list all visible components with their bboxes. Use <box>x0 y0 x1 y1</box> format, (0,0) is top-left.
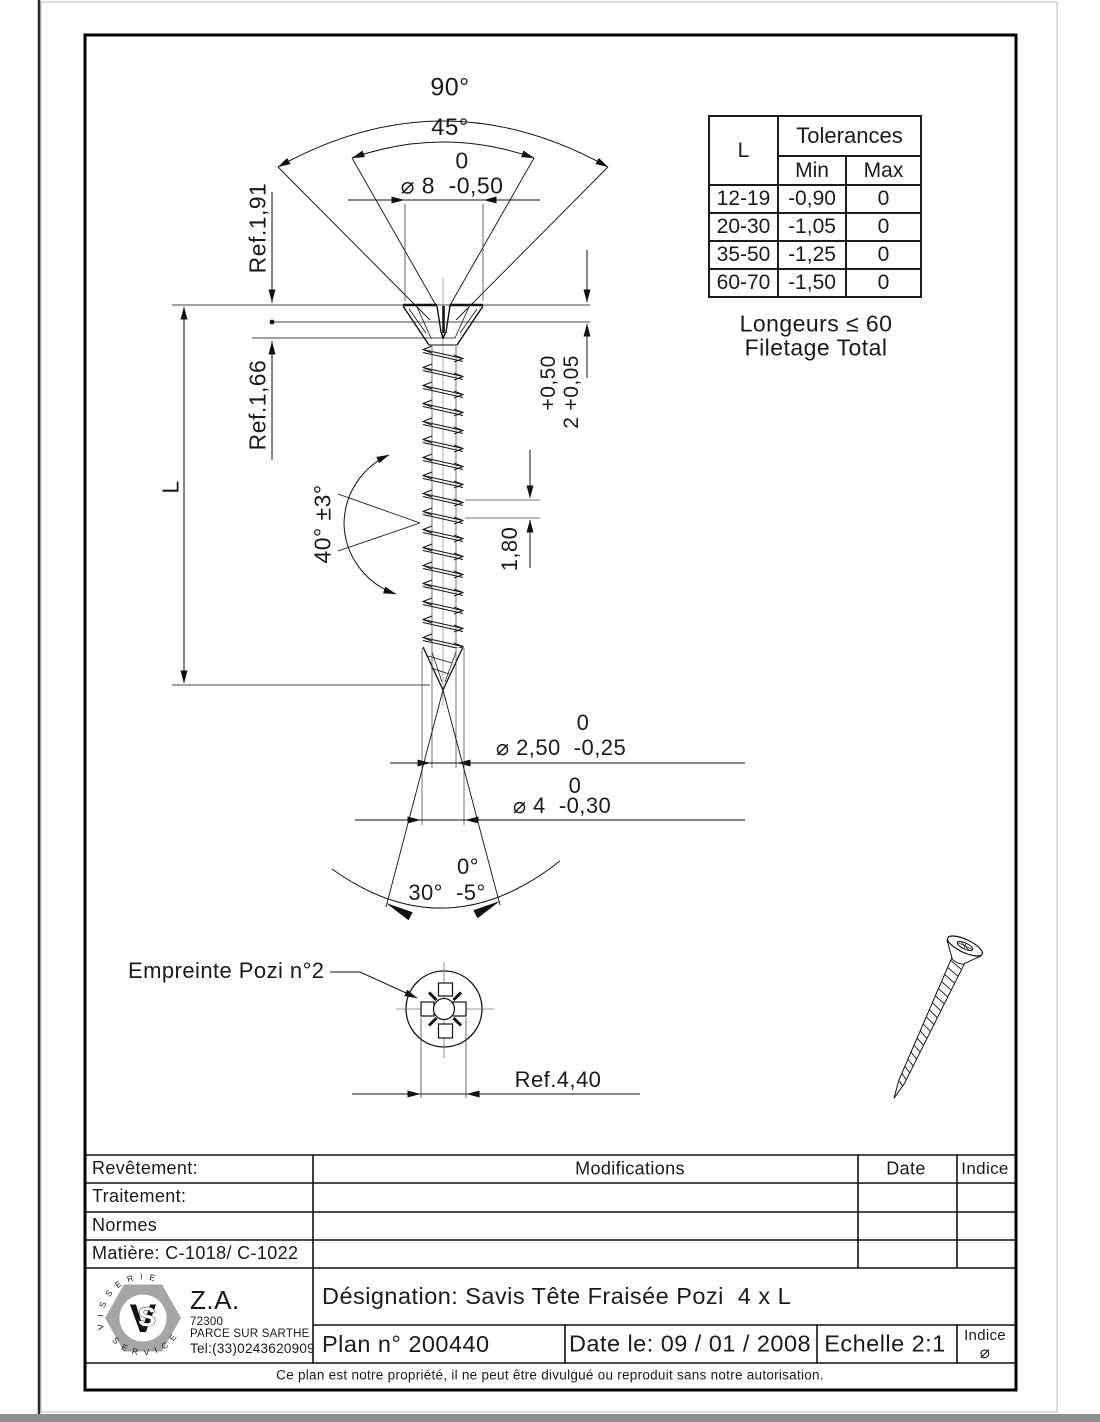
indice-value: ⌀ <box>980 1344 991 1362</box>
tol-row-min: -0,90 <box>778 185 846 213</box>
dim-angle-45: 45° <box>431 115 469 141</box>
tolerances-min-header: Min <box>778 156 846 185</box>
footer-property-notice: Ce plan est notre propriété, il ne peut … <box>276 1369 824 1384</box>
tolerances-table: L Tolerances Min Max 12-19 -0,90 0 20-30… <box>708 115 922 298</box>
screw-3d-view <box>877 932 985 1106</box>
visserie-service-logo: V S V I S S E R I E S E R V I C E <box>95 1271 183 1357</box>
note-filetage: Filetage Total <box>745 336 888 361</box>
dim-dia-thread: ⌀ 4 -0,30 <box>513 794 611 818</box>
dim-angle-90: 90° <box>430 75 469 102</box>
tol-row-l: 20-30 <box>709 213 778 241</box>
date-le: Date le: 09 / 01 / 2008 <box>569 1331 811 1356</box>
company-zip: 72300 <box>190 1316 223 1328</box>
tol-row-l: 60-70 <box>709 269 778 297</box>
tol-row-max: 0 <box>846 185 921 213</box>
tolerances-title: Tolerances <box>778 116 921 156</box>
dim-ref-166: Ref.1,66 <box>246 360 271 451</box>
field-revetement: Revêtement: <box>92 1159 198 1178</box>
field-matiere: Matière: C-1018/ C-1022 <box>92 1244 298 1263</box>
dim-thread-angle: 40° ±3° <box>311 484 336 563</box>
bottom-strip <box>0 1414 1100 1422</box>
dim-ref-191: Ref.1,91 <box>246 183 271 274</box>
dim-head-height: +0,502 +0,05 <box>537 355 583 429</box>
tol-row-min: -1,25 <box>778 241 846 269</box>
company-city: PARCE SUR SARTHE <box>190 1328 310 1340</box>
designation: Désignation: Savis Tête Fraisée Pozi 4 x… <box>322 1284 791 1309</box>
dim-dia-core-tol: 0 <box>577 711 590 735</box>
echelle: Echelle 2:1 <box>824 1331 945 1356</box>
dim-length-l: L <box>159 480 184 493</box>
indice-label: Indice <box>964 1328 1006 1344</box>
header-indice: Indice <box>961 1160 1008 1178</box>
dim-dia-head: ⌀ 8 -0,50 <box>401 174 504 199</box>
tol-row-min: -1,05 <box>778 213 846 241</box>
dim-pitch: 1,80 <box>498 527 522 572</box>
tolerances-col-l: L <box>709 116 778 185</box>
tol-row-min: -1,50 <box>778 269 846 297</box>
dim-head-height-tol: +0,50 <box>537 355 560 429</box>
dim-recess-ref: Ref.4,40 <box>515 1068 602 1092</box>
dim-tip-angle: 30° -5° <box>408 881 485 905</box>
technical-drawing-page: V S V I S S E R I E S E R V I C E L Tole… <box>0 0 1100 1422</box>
dim-dia-head-tol: 0 <box>455 149 468 174</box>
company-za: Z.A. <box>190 1286 240 1314</box>
header-modifications: Modifications <box>575 1159 685 1178</box>
tol-row-l: 12-19 <box>709 185 778 213</box>
tol-row-max: 0 <box>846 269 921 297</box>
field-traitement: Traitement: <box>92 1187 186 1206</box>
plan-number: Plan n° 200440 <box>322 1332 490 1357</box>
screw-front-view <box>172 278 590 706</box>
drawing-canvas: V S V I S S E R I E S E R V I C E <box>0 0 1100 1422</box>
dim-tip-angle-tol: 0° <box>457 855 479 879</box>
pozi-recess-label: Empreinte Pozi n°2 <box>128 959 324 983</box>
company-tel: Tel:(33)0243620909 <box>190 1342 315 1357</box>
tolerances-max-header: Max <box>846 156 921 185</box>
logo-s-letter: S <box>138 1302 156 1332</box>
tol-row-max: 0 <box>846 213 921 241</box>
note-longeurs: Longeurs ≤ 60 <box>740 312 893 337</box>
dim-dia-core: ⌀ 2,50 -0,25 <box>496 736 626 760</box>
dim-head-height-value: 2 +0,05 <box>560 355 583 429</box>
tol-row-l: 35-50 <box>709 241 778 269</box>
tol-row-max: 0 <box>846 241 921 269</box>
header-date: Date <box>886 1159 925 1178</box>
field-normes: Normes <box>92 1216 157 1235</box>
